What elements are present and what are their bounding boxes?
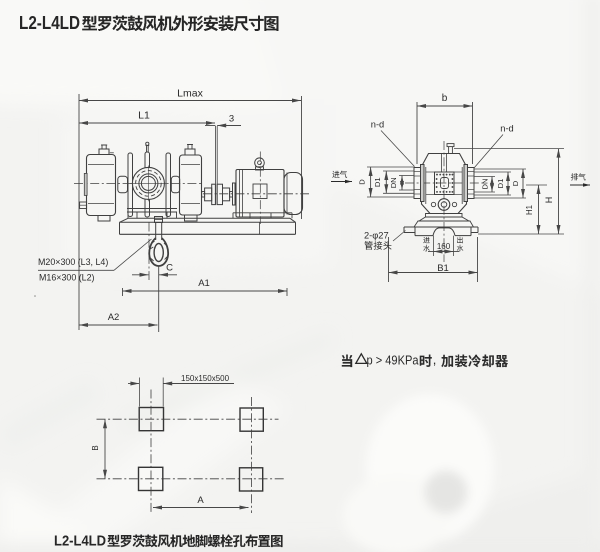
svg-text:D1: D1	[373, 177, 382, 187]
svg-text:Lmax: Lmax	[177, 88, 203, 100]
svg-text:2-φ27: 2-φ27	[364, 231, 389, 241]
svg-text:C: C	[166, 263, 173, 274]
svg-text:DN: DN	[389, 177, 398, 188]
svg-text:p > 49KPa: p > 49KPa	[367, 352, 420, 367]
svg-text:A2: A2	[108, 312, 120, 323]
svg-text:b: b	[442, 93, 448, 104]
svg-text:,: ,	[433, 352, 437, 367]
svg-text:A: A	[197, 495, 204, 506]
svg-text:B1: B1	[437, 263, 449, 274]
svg-text:B: B	[91, 445, 100, 450]
svg-text:L2-L4LD: L2-L4LD	[19, 13, 80, 33]
svg-text:n-d: n-d	[371, 120, 384, 130]
svg-text:D1: D1	[496, 179, 505, 189]
svg-text:D: D	[358, 179, 367, 185]
svg-text:H: H	[544, 197, 554, 204]
svg-text:L1: L1	[138, 110, 150, 122]
svg-text:M20×300 (L3, L4): M20×300 (L3, L4)	[38, 257, 108, 267]
svg-text:n-d: n-d	[500, 124, 513, 134]
svg-text:DN: DN	[481, 179, 490, 190]
svg-text:160: 160	[437, 242, 451, 251]
svg-text:3: 3	[229, 114, 234, 125]
svg-text:L2-L4LD: L2-L4LD	[54, 533, 106, 550]
svg-text:H1: H1	[525, 205, 534, 215]
svg-text:M16×300 (L2): M16×300 (L2)	[39, 273, 95, 283]
svg-text:A1: A1	[198, 278, 210, 289]
svg-text:150x150x500: 150x150x500	[181, 374, 230, 383]
svg-text:D: D	[511, 180, 520, 186]
